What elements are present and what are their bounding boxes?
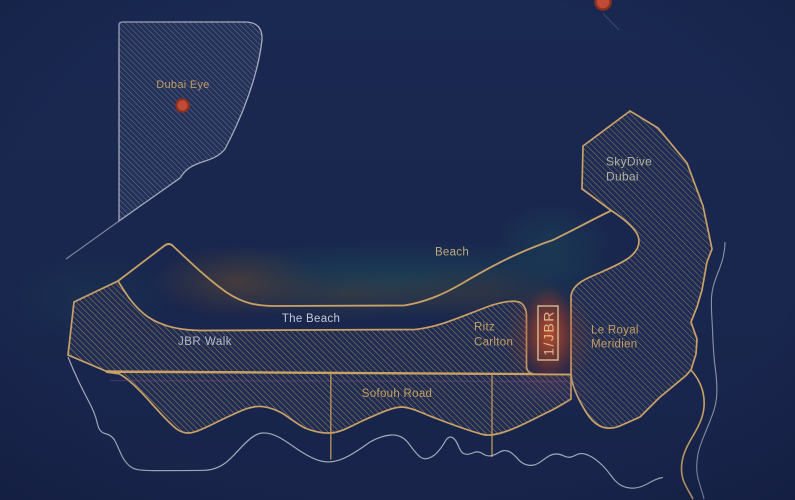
svg-text:Ritz: Ritz: [474, 322, 495, 334]
svg-text:1/JBR: 1/JBR: [541, 310, 557, 356]
svg-text:Meridien: Meridien: [591, 339, 638, 351]
svg-text:Carlton: Carlton: [474, 337, 513, 349]
svg-text:Le Royal: Le Royal: [591, 325, 639, 337]
svg-text:Sofouh Road: Sofouh Road: [362, 388, 432, 400]
svg-text:Dubai Eye: Dubai Eye: [156, 79, 209, 91]
svg-text:SkyDive: SkyDive: [606, 155, 652, 169]
svg-text:The Beach: The Beach: [282, 313, 340, 325]
svg-text:Dubai: Dubai: [606, 170, 639, 184]
svg-text:Beach: Beach: [435, 247, 469, 259]
svg-text:JBR Walk: JBR Walk: [178, 336, 232, 348]
